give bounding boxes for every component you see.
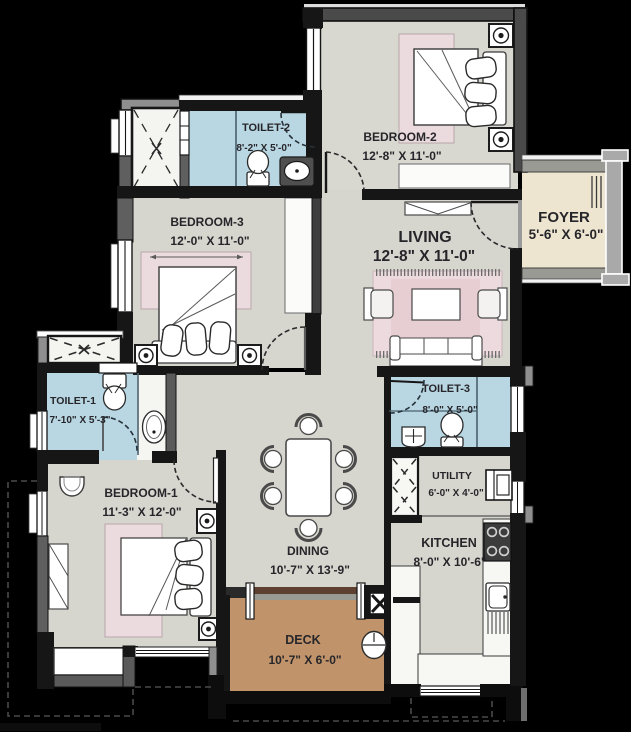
svg-text:12'-8" X 11'-0": 12'-8" X 11'-0" bbox=[362, 149, 441, 163]
svg-text:8'-0" X 5'-0": 8'-0" X 5'-0" bbox=[422, 405, 478, 416]
svg-text:5'-6" X 6'-0": 5'-6" X 6'-0" bbox=[529, 227, 604, 242]
svg-text:8'-2" X 5'-0": 8'-2" X 5'-0" bbox=[236, 143, 292, 154]
svg-text:TOILET-3: TOILET-3 bbox=[422, 383, 470, 395]
svg-text:7'-10" X 5'-3": 7'-10" X 5'-3" bbox=[50, 415, 111, 426]
svg-text:FOYER: FOYER bbox=[538, 209, 590, 226]
svg-text:BEDROOM-3: BEDROOM-3 bbox=[170, 215, 244, 229]
svg-text:UTILITY: UTILITY bbox=[432, 470, 472, 482]
svg-text:11'-3" X 12'-0": 11'-3" X 12'-0" bbox=[102, 505, 181, 519]
svg-text:KITCHEN: KITCHEN bbox=[421, 536, 477, 550]
svg-text:10'-7" X 6'-0": 10'-7" X 6'-0" bbox=[268, 653, 341, 667]
svg-text:DINING: DINING bbox=[287, 544, 329, 558]
svg-text:LIVING: LIVING bbox=[398, 229, 451, 246]
svg-text:TOILET-2: TOILET-2 bbox=[242, 122, 290, 134]
svg-text:DECK: DECK bbox=[285, 633, 320, 647]
svg-text:12'-8" X 11'-0": 12'-8" X 11'-0" bbox=[373, 248, 475, 265]
svg-text:12'-0" X 11'-0": 12'-0" X 11'-0" bbox=[170, 234, 249, 248]
svg-text:8'-0" X 10'-6": 8'-0" X 10'-6" bbox=[413, 555, 486, 569]
svg-text:6'-0" X 4'-0": 6'-0" X 4'-0" bbox=[428, 488, 484, 499]
svg-text:TOILET-1: TOILET-1 bbox=[50, 395, 96, 407]
svg-text:BEDROOM-2: BEDROOM-2 bbox=[363, 130, 437, 144]
svg-text:BEDROOM-1: BEDROOM-1 bbox=[104, 486, 178, 500]
svg-text:10'-7" X 13'-9": 10'-7" X 13'-9" bbox=[270, 563, 350, 577]
